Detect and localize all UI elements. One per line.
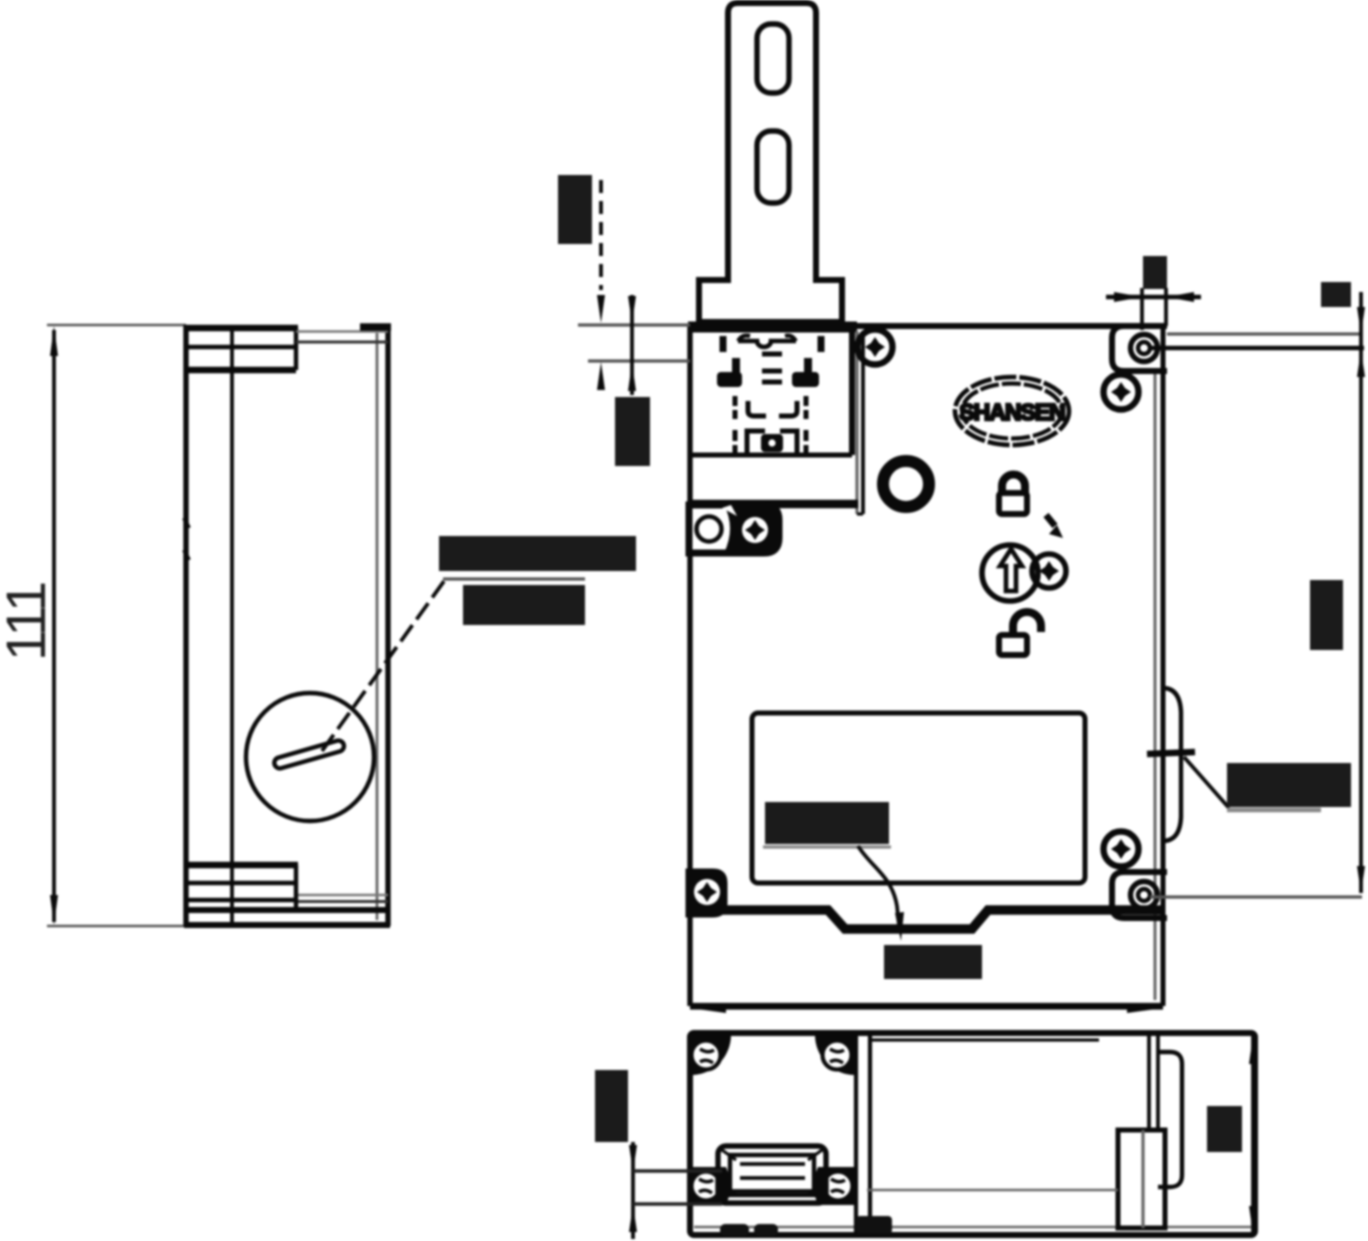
svg-text:111: 111: [0, 583, 57, 661]
svg-text:SHANSEN: SHANSEN: [959, 399, 1065, 425]
